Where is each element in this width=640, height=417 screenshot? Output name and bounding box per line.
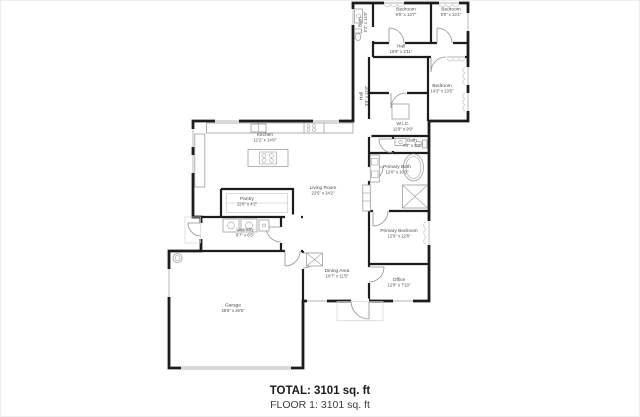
room-dims: 11'2" x 14'0": [254, 138, 277, 143]
toilet-icon: [423, 140, 428, 148]
room-label-garage: Garage 28'8" x 26'5": [222, 303, 245, 314]
primary-bath-fixtures: [370, 154, 427, 208]
laundry-sink-icon: [259, 220, 269, 231]
shower-icon: [403, 185, 428, 208]
room-dims: 12'0" x 10'3": [386, 170, 409, 175]
kitchen-island: [248, 150, 288, 167]
room-dims: 28'8" x 26'5": [222, 308, 245, 313]
room-label-bedroom1: Bedroom 9'0" x 13'7": [396, 7, 417, 18]
room-dims: 12'9" x 7'10": [388, 283, 411, 288]
stove-icon: [304, 123, 324, 133]
room-dims: 3'5" x 11'8": [364, 85, 369, 106]
wic-island-icon: [392, 104, 409, 119]
front-porch: [337, 302, 383, 321]
room-label-dining: Dining Area 10'7" x 11'5": [325, 268, 350, 279]
room-label-primary-bath: Primary Bath 12'0" x 10'3": [383, 164, 411, 175]
room-label-laundry: Laundry 9'7" x 6'5": [236, 227, 255, 238]
water-heater-icon: [173, 254, 182, 263]
living-builtin-icon: [363, 185, 371, 211]
toilet-icon: [355, 29, 362, 33]
mud-closet-icon: [307, 253, 323, 266]
room-label-bedroom-right: Bedroom 14'3" x 13'5": [431, 83, 454, 94]
garage-door: [181, 365, 291, 371]
front-entry-door: [351, 301, 369, 319]
room-dims: 5'2" x 14'9": [363, 11, 368, 32]
interior-walls: [193, 3, 468, 301]
side-stoop: [185, 217, 201, 243]
total-area-label: TOTAL: 3101 sq. ft: [1, 385, 639, 399]
room-dims: 7'2" x 3'9": [403, 143, 422, 148]
room-label-hall-vert: Hall 3'5" x 11'8": [359, 85, 370, 106]
room-label-office: Office 12'9" x 7'10": [388, 277, 411, 288]
room-label-primary-bedroom: Primary Bedroom 12'9" x 12'8": [380, 228, 417, 239]
room-dims: 11'9" x 9'9": [393, 127, 414, 132]
floor1-area-label: FLOOR 1: 3101 sq. ft: [1, 399, 639, 411]
room-label-pantry: Pantry 11'0" x 4'2": [237, 196, 258, 207]
room-label-wic: W.I.C. 11'9" x 9'9": [393, 121, 414, 132]
room-dims: 11'0" x 4'2": [237, 202, 258, 207]
room-dims: 19'6" x 2'11": [390, 49, 413, 54]
room-dims: 12'9" x 12'8": [388, 234, 411, 239]
room-dims: 9'7" x 6'5": [236, 233, 255, 238]
room-label-living: Living Room 22'5" x 24'2": [310, 185, 337, 196]
room-dims: 9'0" x 13'1": [441, 12, 462, 17]
area-summary: TOTAL: 3101 sq. ft FLOOR 1: 3101 sq. ft: [1, 385, 639, 411]
room-dims: 9'0" x 13'7": [396, 12, 417, 17]
floorplan-page: Bath 5'2" x 14'9" Bedroom 9'0" x 13'7" B…: [0, 0, 640, 417]
room-dims: 14'3" x 13'5": [431, 89, 454, 94]
room-label-bedroom2: Bedroom 9'0" x 13'1": [441, 7, 462, 18]
room-dims: 10'7" x 11'5": [326, 274, 349, 279]
room-label-kitchen: Kitchen 11'2" x 14'0": [254, 132, 277, 143]
floorplan-canvas: Bath 5'2" x 14'9" Bedroom 9'0" x 13'7" B…: [1, 1, 640, 417]
room-dims: 22'5" x 24'2": [312, 191, 335, 196]
